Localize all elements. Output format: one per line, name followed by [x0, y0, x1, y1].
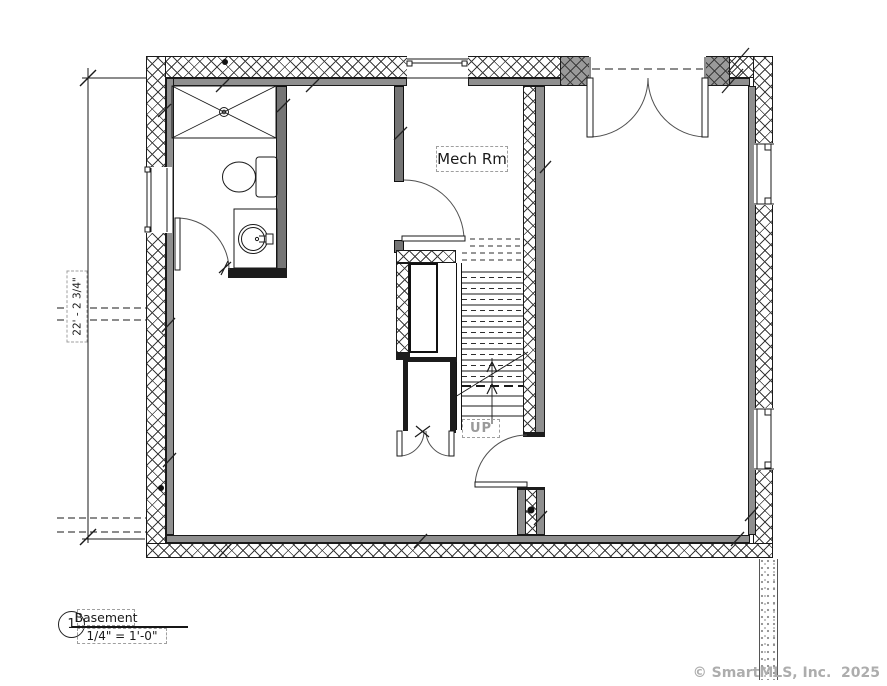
- left-dimension-text-box: 22' - 2 3/4": [67, 271, 88, 343]
- mech-room-label-box: Mech Rm: [436, 146, 508, 172]
- mech-room-label: Mech Rm: [437, 150, 507, 168]
- plan-linework: [0, 0, 887, 686]
- left-dimension-text: 22' - 2 3/4": [71, 277, 83, 335]
- toilet: [223, 157, 278, 197]
- reference-dots: [158, 59, 535, 514]
- right-room-door: [475, 435, 527, 487]
- stair-up-label-box: UP: [462, 419, 500, 438]
- shower: [172, 86, 276, 138]
- stair-up-label: UP: [470, 421, 492, 436]
- window-right-1: [754, 144, 774, 204]
- french-double-door: [587, 57, 708, 137]
- scale-text: 1/4" = 1'-0": [87, 629, 158, 643]
- stair-break-line: [455, 352, 528, 397]
- stairs: [455, 239, 528, 424]
- window-left: [145, 167, 167, 232]
- scale-text-box: 1/4" = 1'-0": [77, 628, 167, 644]
- floor-plan-sheet: Mech Rm UP 22' - 2 3/4" 1 Basement 1/4" …: [0, 0, 887, 686]
- view-title: Basement: [74, 610, 137, 625]
- mech-room-door: [402, 180, 465, 241]
- watermark: © SmartMLS, Inc. 2025: [690, 665, 880, 681]
- window-top: [407, 59, 468, 78]
- view-title-box: Basement: [77, 609, 135, 626]
- closet-double-doors: [397, 426, 454, 456]
- sink: [234, 209, 277, 268]
- bathroom-door: [175, 218, 231, 275]
- window-right-2: [754, 409, 774, 469]
